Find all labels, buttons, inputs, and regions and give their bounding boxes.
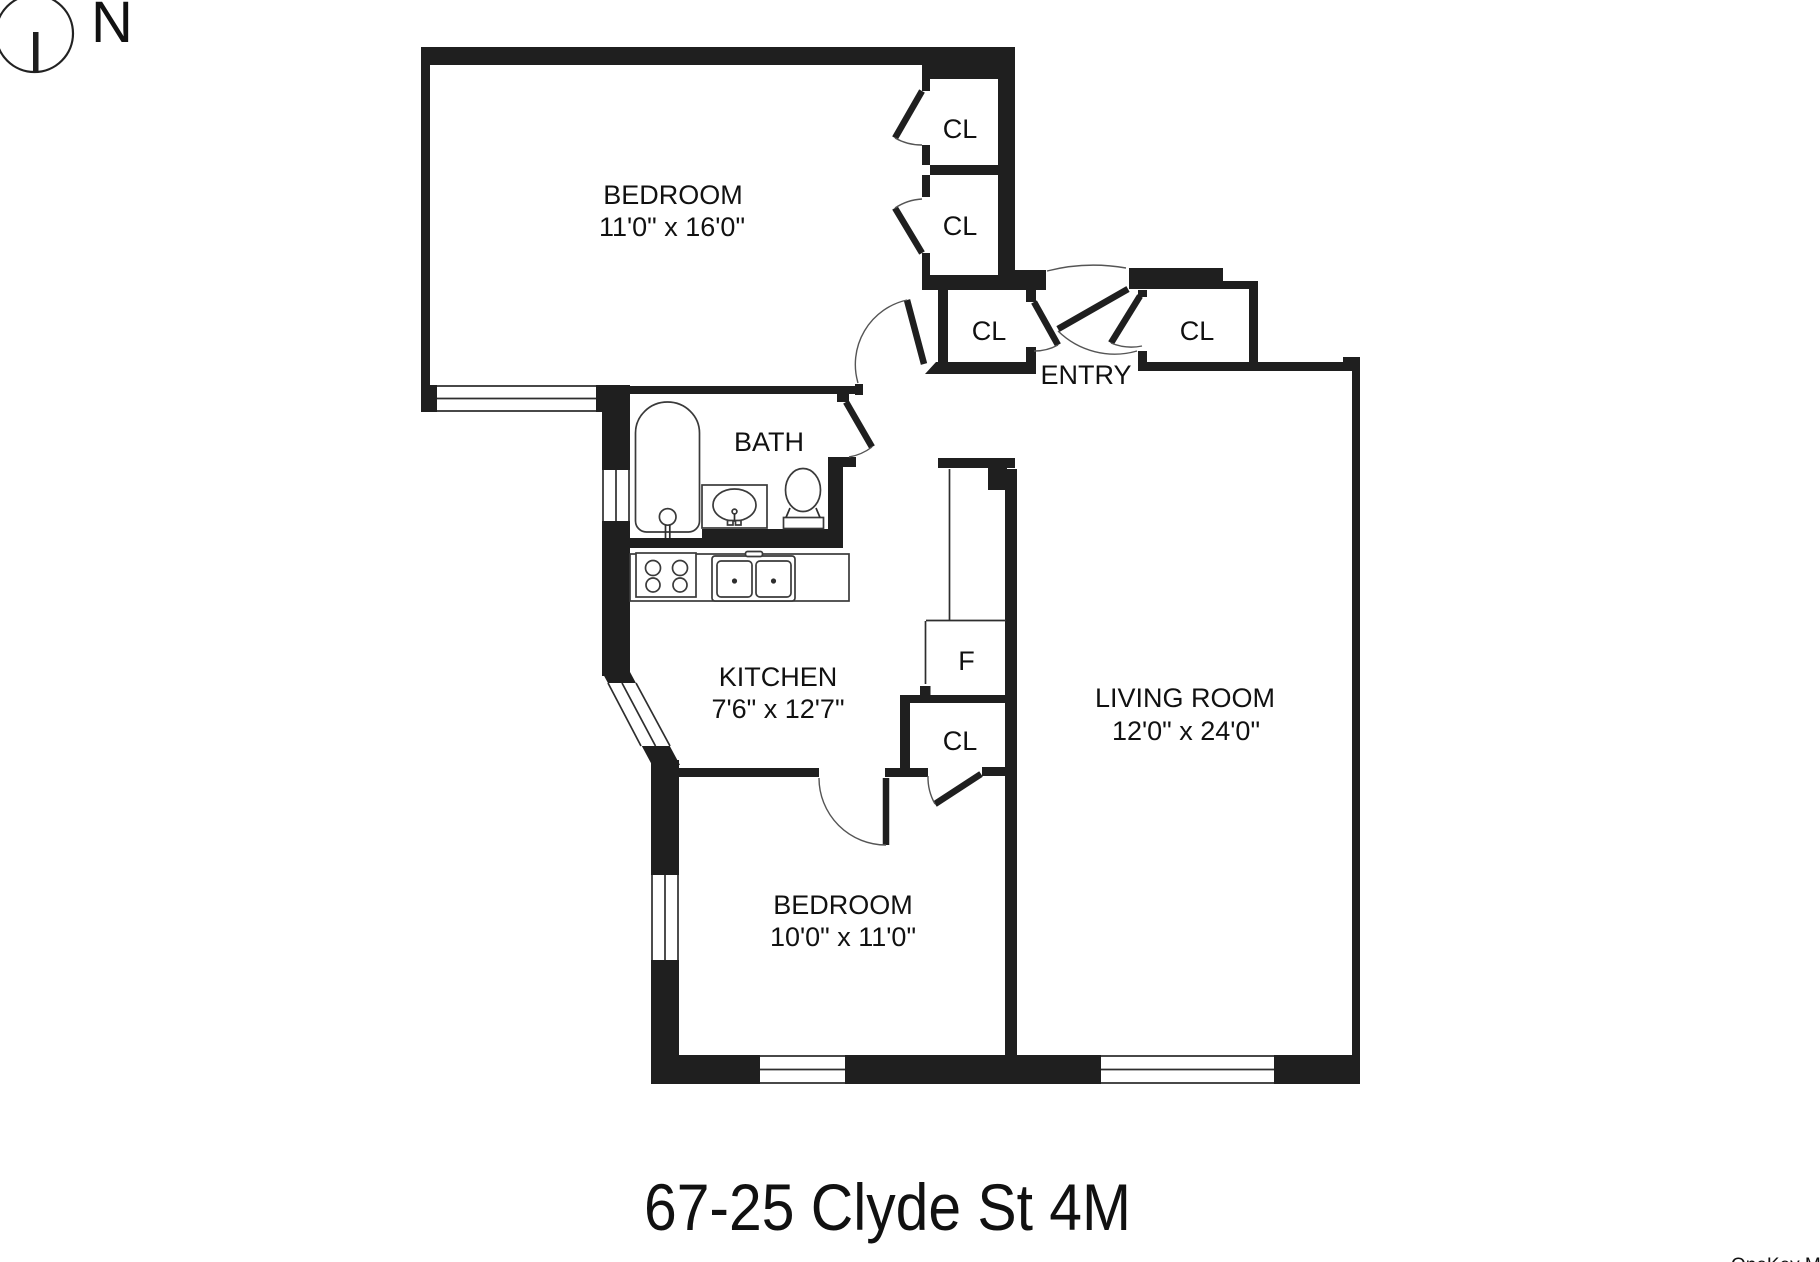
svg-text:67-25 Clyde St 4M: 67-25 Clyde St 4M bbox=[644, 1170, 1131, 1244]
svg-text:OneKey MLS: OneKey MLS bbox=[1731, 1255, 1820, 1262]
svg-text:10'0" x 11'0": 10'0" x 11'0" bbox=[770, 922, 916, 952]
svg-text:N: N bbox=[91, 0, 133, 55]
svg-text:7'6" x 12'7": 7'6" x 12'7" bbox=[711, 694, 844, 724]
svg-text:LIVING ROOM: LIVING ROOM bbox=[1095, 683, 1275, 713]
svg-text:11'0" x 16'0": 11'0" x 16'0" bbox=[599, 212, 745, 242]
svg-text:CL: CL bbox=[1180, 316, 1215, 346]
svg-text:BATH: BATH bbox=[734, 427, 804, 457]
svg-text:KITCHEN: KITCHEN bbox=[719, 662, 838, 692]
svg-text:F: F bbox=[958, 646, 975, 676]
svg-text:CL: CL bbox=[943, 726, 978, 756]
svg-text:BEDROOM: BEDROOM bbox=[773, 890, 913, 920]
svg-text:CL: CL bbox=[943, 211, 978, 241]
svg-text:CL: CL bbox=[943, 114, 978, 144]
svg-text:BEDROOM: BEDROOM bbox=[603, 180, 743, 210]
svg-text:12'0" x 24'0": 12'0" x 24'0" bbox=[1112, 716, 1260, 746]
svg-text:ENTRY: ENTRY bbox=[1040, 360, 1131, 390]
svg-text:CL: CL bbox=[972, 316, 1007, 346]
